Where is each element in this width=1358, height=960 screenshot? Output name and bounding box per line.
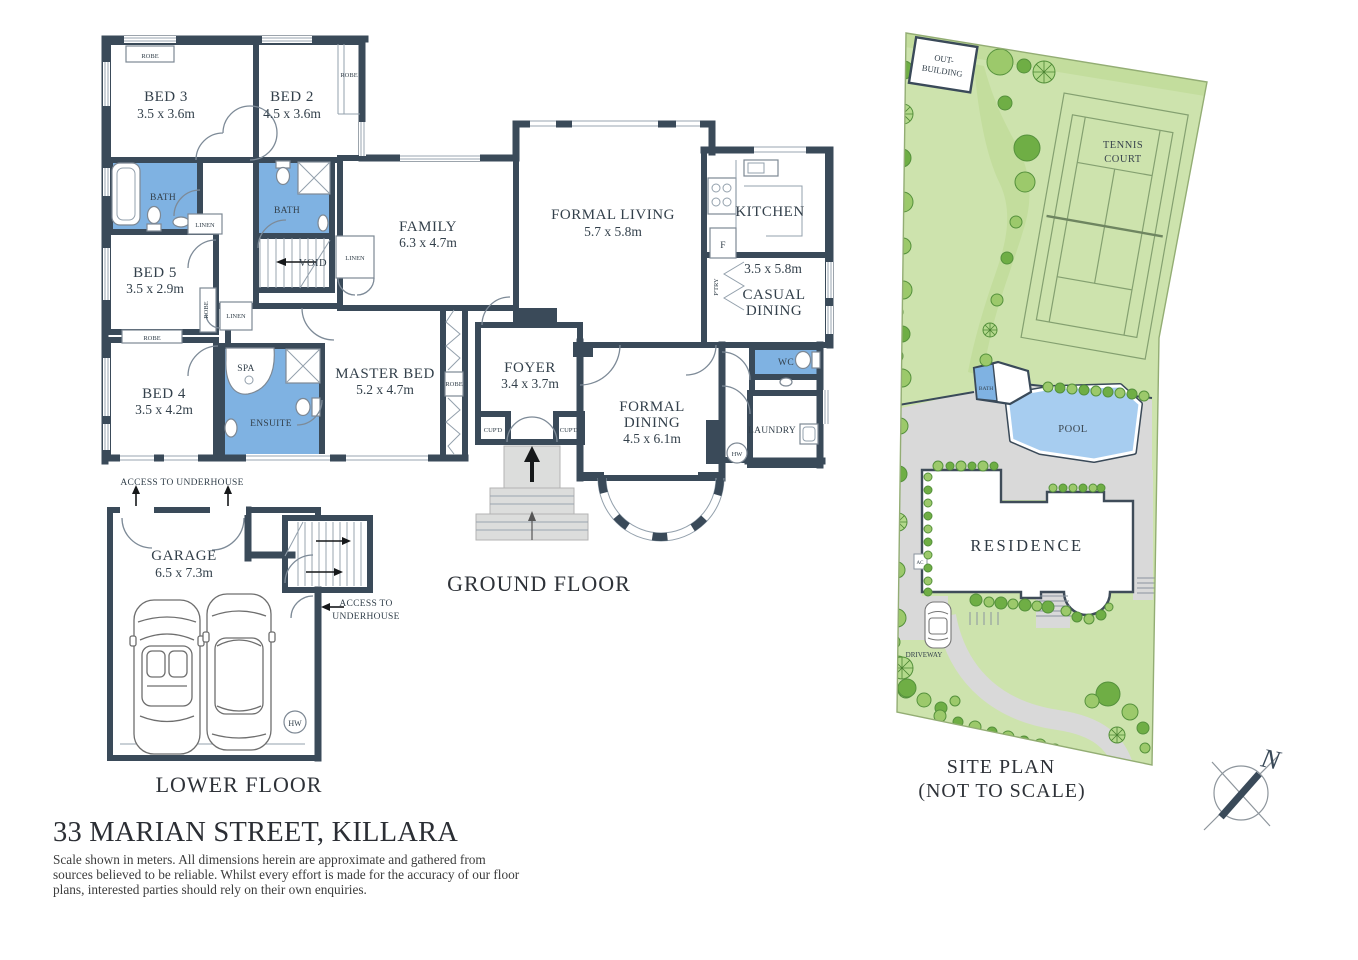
- label-bed3: BED 3: [144, 89, 188, 105]
- label-casual-dims: 3.5 x 5.8m: [744, 261, 802, 276]
- tree-icon: [1079, 385, 1089, 395]
- tree-icon: [1115, 388, 1125, 398]
- tree-icon: [891, 218, 903, 230]
- tree-icon: [1096, 682, 1120, 706]
- tree-burst-icon: [1033, 61, 1055, 83]
- tree-icon: [924, 577, 932, 585]
- tree-icon: [1002, 731, 1014, 743]
- tree-icon: [991, 294, 1003, 306]
- label-casual-2: DINING: [746, 303, 802, 319]
- tree-icon: [1017, 59, 1031, 73]
- label-driveway: DRIVEWAY: [906, 651, 943, 659]
- label-robe: ROBE: [340, 72, 357, 79]
- tree-icon: [950, 696, 960, 706]
- label-kitchen: KITCHEN: [735, 204, 804, 220]
- tree-icon: [1089, 484, 1097, 492]
- tree-icon: [889, 562, 905, 578]
- label-formal-dining-dims: 4.5 x 6.1m: [623, 431, 681, 446]
- tree-icon: [891, 466, 907, 482]
- label-laundry: LAUNDRY: [748, 426, 796, 436]
- car-convertible-icon: [130, 600, 204, 754]
- floorplan-page: BED 3 3.5 x 3.6m BED 2 4.5 x 3.6m BATH B…: [0, 0, 1358, 960]
- tree-icon: [995, 597, 1007, 609]
- label-formal-dining-1: FORMAL: [619, 399, 685, 415]
- label-foyer: FOYER: [504, 360, 556, 376]
- tree-icon: [1122, 704, 1138, 720]
- tree-burst-icon: [983, 323, 997, 337]
- label-bath1: BATH: [150, 193, 176, 203]
- label-bed5-dims: 3.5 x 2.9m: [126, 281, 184, 296]
- tree-icon: [984, 597, 994, 607]
- entry-steps: [476, 446, 588, 540]
- tree-icon: [1097, 484, 1105, 492]
- tree-icon: [1084, 614, 1094, 624]
- label-formal-living: FORMAL LIVING: [551, 207, 675, 223]
- label-master: MASTER BED: [335, 366, 435, 382]
- car-sedan-icon: [203, 594, 275, 750]
- tree-icon: [892, 418, 908, 434]
- tree-icon: [998, 96, 1012, 110]
- wall-chunk: [706, 420, 722, 464]
- tree-icon: [924, 512, 932, 520]
- tree-icon: [956, 461, 966, 471]
- stove-icon: [708, 178, 736, 214]
- label-garage: GARAGE: [151, 548, 217, 564]
- tree-icon: [886, 588, 898, 600]
- label-family-dims: 6.3 x 4.7m: [399, 235, 457, 250]
- tree-icon: [1091, 386, 1101, 396]
- wall-chunk: [573, 342, 593, 357]
- tree-icon: [1010, 216, 1022, 228]
- tree-icon: [990, 462, 998, 470]
- tree-icon: [924, 473, 932, 481]
- label-void: VOID: [299, 258, 327, 269]
- tree-icon: [889, 173, 903, 187]
- tree-icon: [1055, 383, 1065, 393]
- label-robe: ROBE: [143, 335, 160, 342]
- garage-door-gap: [120, 506, 154, 515]
- tree-icon: [1043, 382, 1053, 392]
- label-formal-dining-2: DINING: [624, 415, 680, 431]
- label-cupd: CUP'D: [560, 427, 579, 434]
- compass: N: [1204, 742, 1285, 830]
- label-robe: ROBE: [445, 381, 462, 388]
- label-ac: AC: [917, 561, 925, 566]
- tree-icon: [1032, 601, 1042, 611]
- disclaimer-line-3: plans, interested parties should rely on…: [53, 882, 367, 897]
- tree-burst-icon: [889, 261, 903, 275]
- label-formal-living-dims: 5.7 x 5.8m: [584, 224, 642, 239]
- tree-icon: [924, 588, 932, 596]
- label-bed5: BED 5: [133, 265, 177, 281]
- tree-icon: [1103, 387, 1113, 397]
- label-residence: RESIDENCE: [970, 536, 1083, 555]
- tree-icon: [980, 354, 992, 366]
- tree-icon: [924, 525, 932, 533]
- compass-needle: [1221, 774, 1259, 817]
- pool-bath-house: [974, 362, 1031, 404]
- title-block: 33 MARIAN STREET, KILLARA Scale shown in…: [53, 817, 520, 897]
- tree-icon: [887, 540, 899, 552]
- tree-icon: [890, 130, 902, 142]
- label-hw: HW: [732, 451, 744, 458]
- label-ensuite: ENSUITE: [250, 419, 292, 429]
- tree-icon: [1015, 172, 1035, 192]
- tree-icon: [1127, 389, 1137, 399]
- tree-icon: [924, 551, 932, 559]
- tree-icon: [924, 499, 932, 507]
- tree-icon: [1085, 694, 1099, 708]
- label-foyer-dims: 3.4 x 3.7m: [501, 376, 559, 391]
- label-access-1: ACCESS TO: [339, 599, 392, 609]
- label-garage-dims: 6.5 x 7.3m: [155, 565, 213, 580]
- tree-icon: [1079, 484, 1087, 492]
- site-plan-title-2: (NOT TO SCALE): [918, 780, 1085, 802]
- label-linen: LINEN: [226, 313, 246, 320]
- tree-icon: [970, 594, 982, 606]
- label-linen: LINEN: [345, 255, 365, 262]
- tree-icon: [1049, 484, 1057, 492]
- tree-icon: [917, 693, 931, 707]
- tree-icon: [889, 349, 903, 363]
- bay-stub: [698, 472, 724, 480]
- tree-icon: [891, 46, 903, 58]
- tree-icon: [889, 396, 901, 408]
- floorplan-canvas: BED 3 3.5 x 3.6m BED 2 4.5 x 3.6m BATH B…: [0, 0, 1358, 960]
- tree-burst-icon: [889, 513, 907, 531]
- wall-chunk: [515, 308, 557, 326]
- label-bed2: BED 2: [270, 89, 314, 105]
- tree-icon: [1067, 384, 1077, 394]
- tree-burst-icon: [891, 657, 913, 679]
- label-bed2-dims: 4.5 x 3.6m: [263, 106, 321, 121]
- label-pool-bath: BATH: [979, 386, 993, 392]
- tree-icon: [1069, 484, 1077, 492]
- out-building: OUT- BUILDING: [909, 37, 977, 92]
- lower-floor-title: LOWER FLOOR: [156, 772, 323, 797]
- tree-icon: [888, 609, 906, 627]
- label-hw: HW: [288, 719, 302, 728]
- tree-burst-icon: [893, 104, 913, 124]
- car-icon-site: [925, 602, 951, 648]
- tree-icon: [1014, 135, 1040, 161]
- tree-icon: [887, 492, 899, 504]
- label-family: FAMILY: [399, 219, 457, 235]
- label-master-dims: 5.2 x 4.7m: [356, 382, 414, 397]
- label-access-underhouse: ACCESS TO UNDERHOUSE: [120, 478, 243, 488]
- tree-icon: [898, 679, 916, 697]
- tree-icon: [891, 306, 903, 318]
- tree-icon: [978, 461, 988, 471]
- label-tennis-2: COURT: [1104, 154, 1142, 165]
- tree-icon: [1008, 599, 1018, 609]
- lower-floor-plan: GARAGE 6.5 x 7.3m HW ACCESS TO UNDERHOUS…: [110, 506, 400, 797]
- label-tennis-1: TENNIS: [1103, 140, 1143, 151]
- tree-icon: [924, 564, 932, 572]
- label-spa: SPA: [237, 364, 254, 374]
- label-bath2: BATH: [274, 206, 300, 216]
- site-plan-title-1: SITE PLAN: [947, 756, 1055, 778]
- access-arrowhead: [321, 603, 330, 611]
- label-casual-1: CASUAL: [742, 287, 805, 303]
- ground-floor-title: GROUND FLOOR: [447, 571, 631, 596]
- tree-icon: [1019, 599, 1031, 611]
- compass-north-label: N: [1258, 742, 1285, 776]
- tree-icon: [1001, 252, 1013, 264]
- bay-window: [598, 478, 724, 541]
- tree-icon: [1105, 603, 1113, 611]
- tree-icon: [1096, 610, 1106, 620]
- tree-icon: [1140, 743, 1150, 753]
- label-robe: ROBE: [141, 53, 158, 60]
- disclaimer-line-2: sources believed to be reliable. Whilst …: [53, 867, 520, 882]
- address-title: 33 MARIAN STREET, KILLARA: [53, 817, 458, 848]
- tree-icon: [888, 444, 900, 456]
- tree-icon: [1072, 612, 1082, 622]
- label-access-2: UNDERHOUSE: [332, 612, 399, 622]
- garage-door-gap: [210, 506, 246, 515]
- disclaimer-line-1: Scale shown in meters. All dimensions he…: [53, 852, 486, 867]
- tree-icon: [968, 462, 976, 470]
- label-robe: ROBE: [203, 301, 210, 318]
- label-fridge: F: [720, 241, 726, 251]
- tree-icon: [946, 462, 954, 470]
- tree-burst-icon: [1109, 727, 1125, 743]
- tree-icon: [1059, 484, 1067, 492]
- tree-icon: [1042, 601, 1054, 613]
- access-arrows-top: [132, 485, 232, 506]
- label-pantry: P'TRY: [713, 278, 720, 296]
- label-bed3-dims: 3.5 x 3.6m: [137, 106, 195, 121]
- tree-icon: [933, 461, 943, 471]
- label-linen: LINEN: [195, 222, 215, 229]
- label-pool: POOL: [1058, 424, 1087, 435]
- label-cupd: CUP'D: [484, 427, 503, 434]
- label-wc: WC: [778, 358, 794, 368]
- tree-icon: [987, 49, 1013, 75]
- tree-icon: [889, 261, 903, 275]
- side-path: [1133, 470, 1153, 600]
- tree-icon: [889, 85, 903, 99]
- tree-icon: [1061, 606, 1071, 616]
- tree-icon: [924, 486, 932, 494]
- label-bed4: BED 4: [142, 386, 186, 402]
- tree-icon: [1137, 722, 1149, 734]
- tree-icon: [924, 538, 932, 546]
- tree-icon: [1139, 391, 1149, 401]
- label-bed4-dims: 3.5 x 4.2m: [135, 402, 193, 417]
- tree-icon: [893, 149, 911, 167]
- site-plan: OUT- BUILDING TENNIS COURT POOL BATH RES…: [886, 33, 1207, 802]
- sink-icon: [744, 160, 778, 176]
